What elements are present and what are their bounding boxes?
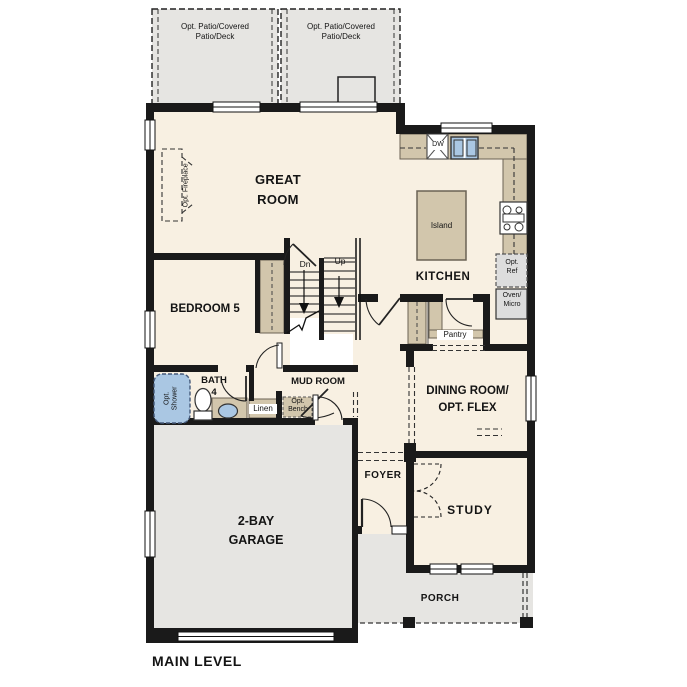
bedroom5-label: BEDROOM 5 xyxy=(158,302,252,316)
dining-room-label: DINING ROOM/ OPT. FLEX xyxy=(410,383,525,418)
opt-fireplace-label: Opt. Fireplace xyxy=(183,151,192,219)
opt-shower-label: Opt. Shower xyxy=(164,368,181,428)
opt-bench-label: Opt. Bench xyxy=(285,398,311,415)
floor-plan-drawing xyxy=(0,0,687,687)
dishwasher-label: DW xyxy=(429,141,447,150)
pantry-label: Pantry xyxy=(437,330,473,340)
garage-entry-door xyxy=(313,395,318,420)
floor-plan: Opt. Patio/Covered Patio/Deck Opt. Patio… xyxy=(0,0,687,687)
kitchen-label: KITCHEN xyxy=(399,270,487,284)
great-room-label: GREAT ROOM xyxy=(233,170,323,209)
bedroom5-door xyxy=(277,343,282,368)
stairs-down-label: Dn xyxy=(295,259,315,270)
opt-ref-label: Opt. Ref xyxy=(498,259,526,277)
garage-label: 2-BAY GARAGE xyxy=(216,512,296,550)
mud-room-label: MUD ROOM xyxy=(282,376,354,388)
pantry-shelf xyxy=(429,301,442,330)
linen-label: Linen xyxy=(249,404,277,414)
island-label: Island xyxy=(417,221,466,231)
main-level-title: MAIN LEVEL xyxy=(152,653,272,671)
vanity-sink xyxy=(219,404,238,418)
patio-left-label: Opt. Patio/Covered Patio/Deck xyxy=(163,22,267,42)
oven-micro-label: Oven/ Micro xyxy=(498,292,526,310)
porch-post xyxy=(403,617,415,628)
stairs-up-label: Up xyxy=(330,256,350,267)
bath4-label: BATH 4 xyxy=(197,375,231,400)
patio-right-label: Opt. Patio/Covered Patio/Deck xyxy=(289,22,393,42)
foyer-label: FOYER xyxy=(359,470,407,483)
study-label: STUDY xyxy=(438,503,502,518)
porch-label: PORCH xyxy=(409,593,471,606)
porch-post xyxy=(520,617,533,628)
